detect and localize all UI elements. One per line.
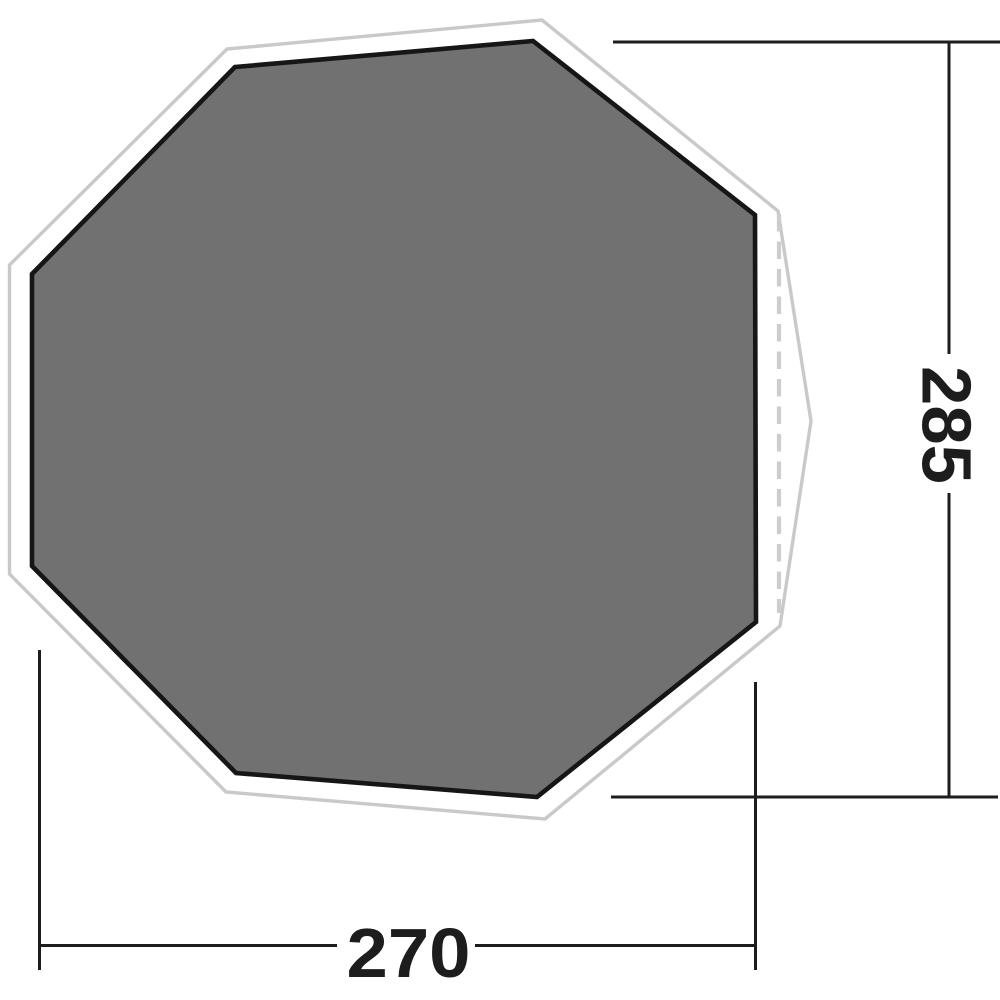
svg-text:270: 270 xyxy=(347,914,471,992)
svg-text:285: 285 xyxy=(908,366,986,484)
